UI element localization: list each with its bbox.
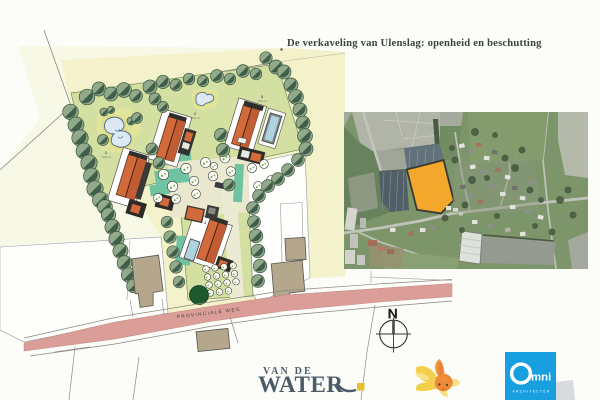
svg-text:1700 m2: 1700 m2 [190, 117, 200, 120]
svg-text:1700 m2: 1700 m2 [257, 100, 267, 103]
svg-text:WATER: WATER [258, 372, 344, 397]
svg-text:ARCHITECTEN: ARCHITECTEN [513, 390, 551, 394]
svg-text:mni: mni [531, 372, 551, 384]
svg-text:1700 m2: 1700 m2 [101, 156, 111, 159]
svg-text:De verkaveling van Ulenslag: o: De verkaveling van Ulenslag: openheid en… [287, 38, 542, 49]
